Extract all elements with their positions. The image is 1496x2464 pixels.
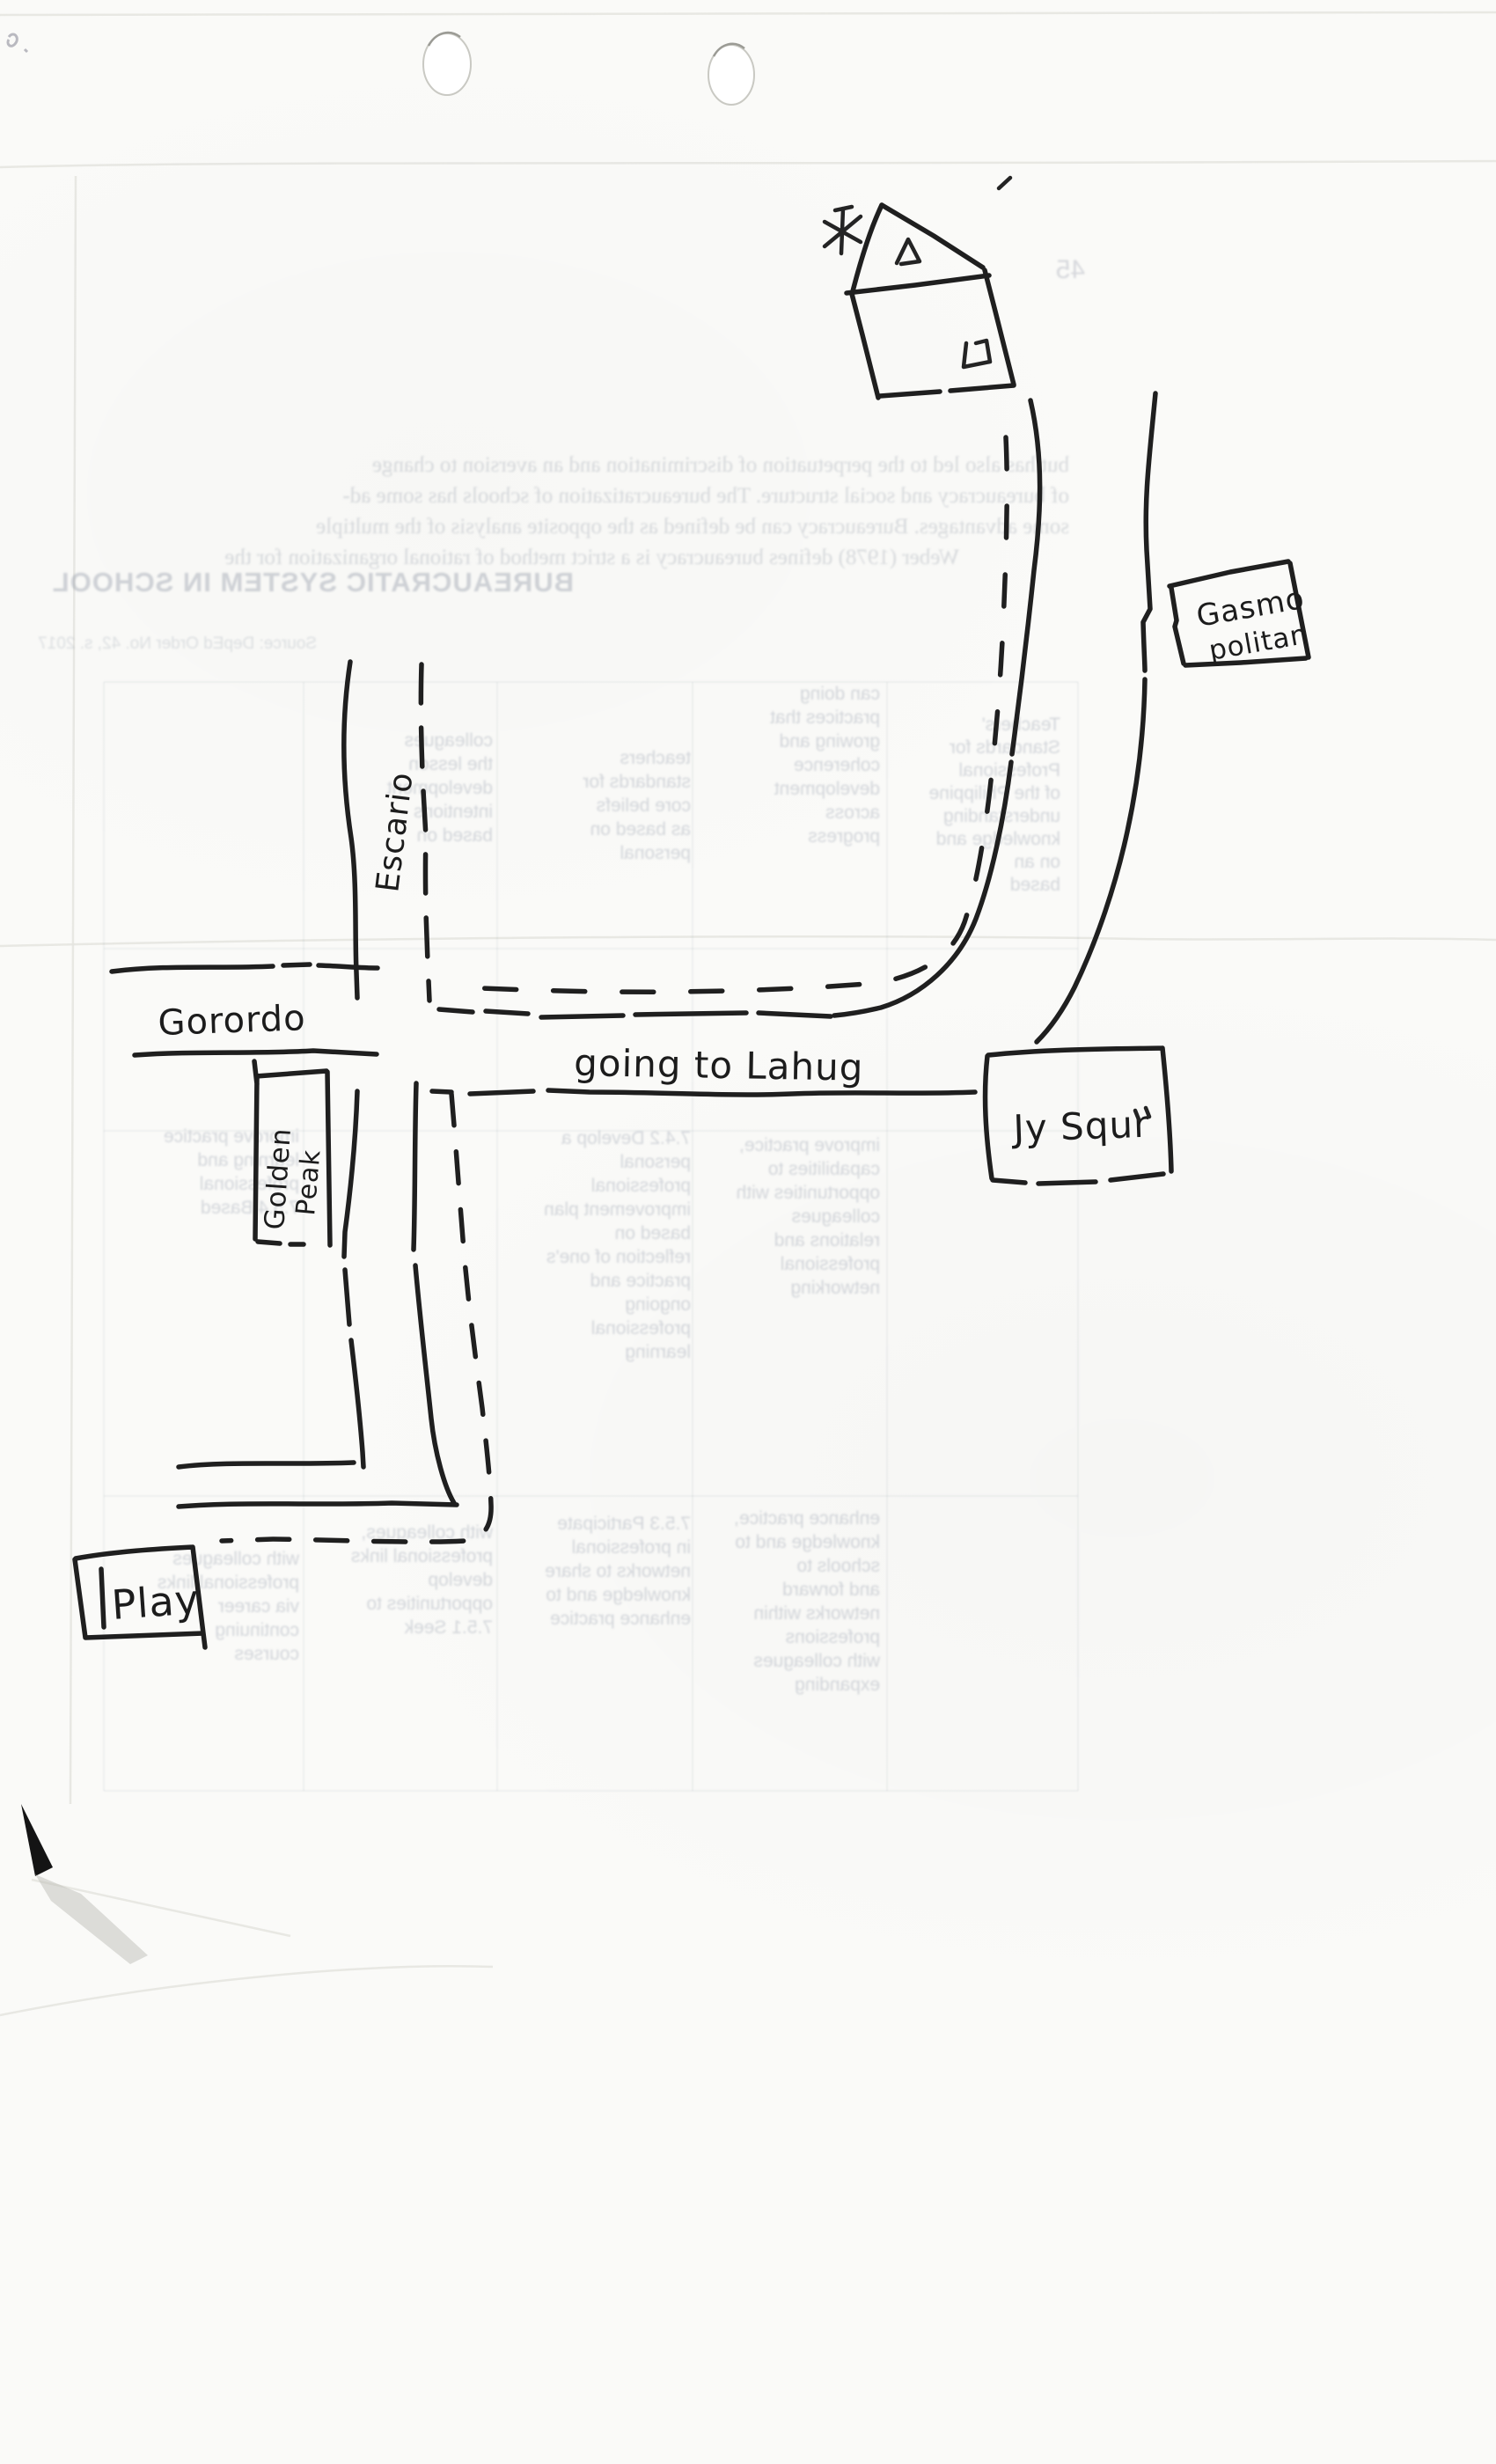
pencil-mark	[8, 34, 27, 52]
bleed-paragraph-line: but has also led to the perpetuation of …	[372, 453, 1069, 477]
bleed-cell-line: opportunities with	[737, 1183, 880, 1203]
house-wall-bottom	[880, 385, 1014, 396]
street-label-escario: Escario	[370, 770, 420, 894]
bleed-cell-line: 7.4.2 Develop a	[561, 1128, 691, 1148]
bleed-cell-line: based	[1010, 875, 1060, 895]
stray-pen-mark	[999, 178, 1010, 188]
bleed-cell-line: networks to share	[545, 1561, 691, 1581]
bleed-cell-line: schools to	[796, 1556, 880, 1576]
bleed-cell-line: personal	[620, 843, 691, 863]
bleed-cell-line: reflection of one's	[546, 1247, 691, 1267]
bottom-road-bottom-edge	[179, 1503, 457, 1507]
bleed-cell-line: 7.5.3 Participate	[557, 1514, 691, 1534]
gorordo-street: Gorordo	[112, 964, 378, 1055]
bleed-cell-line: core beliefs	[597, 796, 691, 816]
bleed-cell-line: courses	[234, 1644, 299, 1664]
bleed-cell-line: based on	[417, 825, 493, 846]
bleed-cell-line: development	[774, 779, 880, 799]
crease-bottom	[0, 1966, 493, 2015]
bleed-cell-line: opportunities to	[366, 1594, 493, 1614]
escario-street: Escario	[344, 662, 429, 1001]
crease-top	[0, 161, 1496, 167]
bleed-cell-line: via career	[218, 1596, 299, 1617]
bleed-cell-line: professional	[591, 1176, 691, 1196]
bleed-cell-line: progress	[808, 826, 880, 847]
house-landmark	[825, 178, 1014, 398]
bleed-cell-line: professional	[591, 1318, 691, 1338]
north-road-right-edge-upper	[1143, 393, 1155, 671]
bleed-cell-line: enhance practice,	[734, 1508, 880, 1529]
crease-middle	[0, 936, 1091, 946]
bleed-cell-line: and forward	[782, 1580, 880, 1600]
bleed-cell-line: practice and	[590, 1271, 691, 1291]
paper-top-edge	[0, 12, 1496, 15]
bleed-cell-line: in professional	[572, 1537, 691, 1558]
bleed-cell-line: colleagues	[792, 1206, 880, 1227]
bleed-cell-line: professions	[786, 1627, 880, 1647]
bleed-cell-line: standards for	[583, 772, 691, 792]
bleed-cell-line: capabilities to	[768, 1159, 880, 1179]
lahug-road-bottom-edge	[432, 1090, 975, 1095]
south-street-left-edge	[344, 1091, 363, 1467]
gorordo-top-edge	[112, 964, 378, 972]
corner-fold-shadow	[35, 1874, 148, 1964]
crease-middle-right	[1091, 938, 1496, 940]
house-roof-base	[847, 275, 989, 293]
escario-left-edge	[344, 662, 357, 998]
bleed-cell-line: continuing	[215, 1620, 299, 1640]
bleed-source-line: Source: DepEd Order No. 42, s. 2017	[38, 634, 317, 653]
bleed-cell-line: improve practice,	[739, 1135, 880, 1155]
corner-ink-blot	[21, 1804, 53, 1876]
bleed-cell-line: enhance practice	[550, 1609, 691, 1629]
label-jy-square: Jy Squr	[1010, 1103, 1150, 1150]
bleed-cell-line: personal	[620, 1152, 691, 1172]
bleed-cell-line: improvement plan	[544, 1199, 691, 1220]
street-label-gorordo: Gorordo	[158, 998, 307, 1044]
bleed-cell-line: networks within	[753, 1603, 880, 1624]
bleed-cell-line: knowledge and to	[546, 1585, 691, 1605]
bleed-cell-line: growing and	[780, 731, 880, 752]
bleed-paragraph-line: some advantages. Bureaucracy can be defi…	[316, 515, 1069, 539]
house-door-shape	[964, 341, 990, 367]
bleed-cell-line: as based on	[590, 819, 691, 840]
bleed-cell-line: practices that	[770, 708, 880, 728]
gorordo-bottom-edge	[135, 1051, 377, 1055]
bleed-paragraph-line: Weber (1978) defines bureaucracy is a st…	[224, 546, 959, 569]
street-label-going-to-lahug: going to Lahug	[574, 1041, 864, 1089]
gasmopolitan-box: Gasmo politan	[1170, 561, 1310, 667]
house-roof-window-triangle	[897, 239, 920, 264]
bottom-road-top-edge	[179, 1463, 354, 1467]
south-street-right-edge	[414, 1083, 454, 1503]
bleed-cell-line: ongoing	[625, 1294, 691, 1315]
house-wall-right	[985, 270, 1014, 385]
bleed-cell-line: Standards for	[950, 737, 1060, 758]
bleed-cell-line: networking	[790, 1278, 880, 1298]
bleed-cell-line: can doing	[800, 684, 880, 704]
bleed-cell-line: learning	[625, 1342, 691, 1362]
lahug-road: going to Lahug	[432, 1009, 975, 1095]
label-peak: Peak	[290, 1148, 326, 1217]
bleed-cell-line: with colleagues	[753, 1651, 881, 1671]
bleed-cell-line: of the Philippine	[929, 783, 1060, 803]
bleed-cell-line: professional links	[351, 1546, 493, 1566]
bleed-cell-line: professional	[781, 1254, 880, 1274]
bleed-cell-line: 7.5.1 Seek	[404, 1617, 493, 1638]
bleed-cell-line: based on	[615, 1223, 691, 1243]
bleed-paragraph-line: of bureaucracy and social structure. The…	[342, 484, 1069, 508]
bleed-heading: BUREAUCRATIC SYSTEM IN SCHOOL	[52, 567, 574, 598]
bleed-cell-line: across	[825, 803, 880, 823]
house-wall-left	[852, 294, 878, 398]
bleed-cell-line: expanding	[795, 1675, 880, 1695]
bleed-cell-line: coherence	[794, 755, 880, 775]
bleed-through-text: but has also led to the perpetuation of …	[38, 255, 1085, 1695]
bleed-cell-line: knowledge and to	[735, 1532, 880, 1552]
bleed-cell-line: develop	[428, 1570, 493, 1590]
bleed-cell-line: colleagues	[405, 730, 493, 751]
bleed-page-number: 45	[1056, 255, 1085, 284]
scanned-paper-sheet: but has also led to the perpetuation of …	[0, 0, 1496, 2464]
label-play: Play	[110, 1575, 201, 1629]
bleed-cell-line: on an	[1014, 852, 1060, 872]
star-marker-icon	[825, 207, 861, 253]
bleed-cell-line: teachers	[620, 748, 691, 768]
bleed-cell-line: relations and	[774, 1230, 880, 1250]
